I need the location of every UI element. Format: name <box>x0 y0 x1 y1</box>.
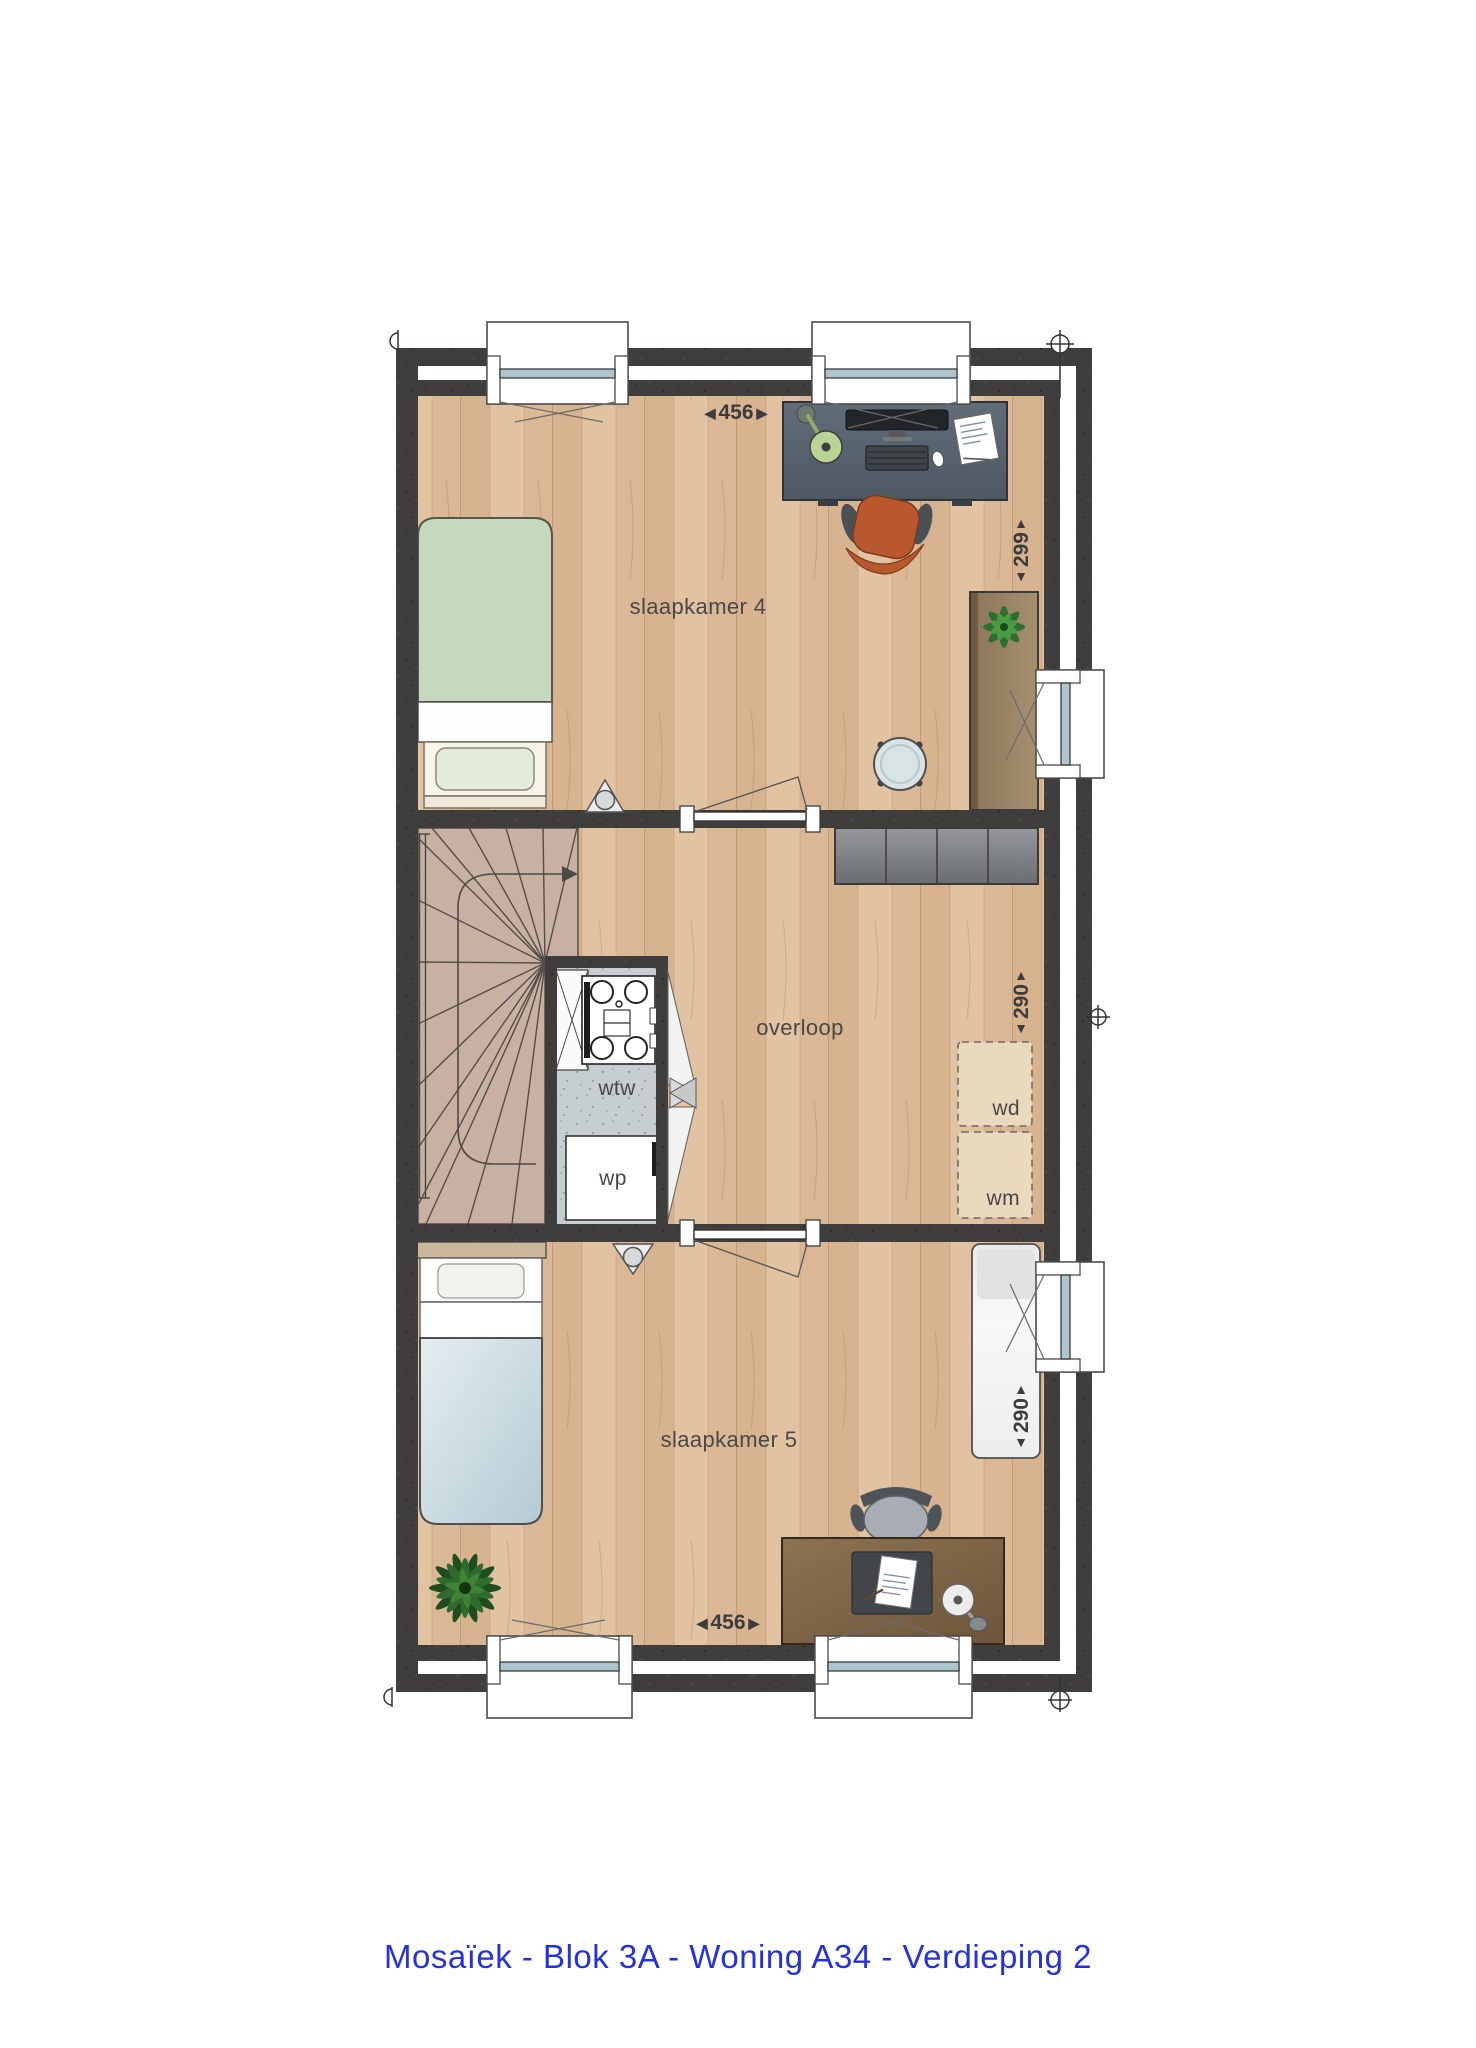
dimension-value: 456 <box>718 402 753 423</box>
dimension-value: 456 <box>710 1612 745 1633</box>
room-label-bedroom5: slaapkamer 5 <box>609 1429 849 1451</box>
papers <box>953 413 998 465</box>
floorplan-page: slaapkamer 4 overloop slaapkamer 5 wtw w… <box>0 0 1476 2048</box>
wardrobe-cabinet <box>835 828 1038 884</box>
dim-arrow-up-icon: ▲ <box>1014 968 1028 982</box>
label-dryer: wd <box>958 1098 1020 1119</box>
dim-arrow-down-icon: ▼ <box>1014 569 1028 583</box>
dim-arrow-down-icon: ▼ <box>1014 1435 1028 1449</box>
dim-arrow-left-icon: ◀ <box>697 1616 708 1630</box>
dim-arrow-right-icon: ▶ <box>749 1616 760 1630</box>
dimension-landing-depth: ▲ 290 ▼ <box>1000 968 1042 1035</box>
label-heat-recovery-unit: wtw <box>577 1078 657 1099</box>
keyboard <box>866 446 928 470</box>
dimension-value: 290 <box>1011 1398 1032 1433</box>
dimension-bedroom4-depth: ▲ 299 ▼ <box>1000 516 1042 583</box>
wtw-unit <box>556 970 657 1070</box>
dim-arrow-down-icon: ▼ <box>1014 1021 1028 1035</box>
dimension-value: 290 <box>1011 984 1032 1019</box>
label-heat-pump: wp <box>573 1168 653 1189</box>
plant-sideboard <box>983 606 1025 648</box>
dim-arrow-left-icon: ◀ <box>705 406 716 420</box>
stool <box>874 738 926 790</box>
room-label-bedroom4: slaapkamer 4 <box>578 596 818 618</box>
closet-wall-top <box>545 956 668 968</box>
wall-left <box>396 348 418 1692</box>
paper-bedroom5 <box>875 1556 917 1609</box>
desk-bedroom5 <box>782 1538 1004 1644</box>
wall-right-outer <box>1076 348 1092 1692</box>
bed-bedroom4 <box>418 518 552 808</box>
dim-arrow-up-icon: ▲ <box>1014 1382 1028 1396</box>
closet-wall-right <box>656 956 668 1224</box>
dimension-bedroom4-width: ◀ 456 ▶ <box>666 402 806 423</box>
dimension-value: 299 <box>1011 532 1032 567</box>
dim-arrow-right-icon: ▶ <box>757 406 768 420</box>
dim-arrow-up-icon: ▲ <box>1014 516 1028 530</box>
marker-top-left-icon <box>390 330 398 352</box>
marker-bottom-left-icon <box>384 1687 392 1707</box>
dimension-bedroom5-width: ◀ 456 ▶ <box>658 1612 798 1633</box>
plan-caption: Mosaïek - Blok 3A - Woning A34 - Verdiep… <box>0 1938 1476 1976</box>
label-washer: wm <box>958 1188 1020 1209</box>
dimension-bedroom5-depth: ▲ 290 ▼ <box>1000 1382 1042 1449</box>
room-label-landing: overloop <box>700 1017 900 1039</box>
closet-wall-left <box>545 956 557 1224</box>
bed-bedroom5 <box>414 1242 546 1524</box>
wall-right-inner <box>1044 380 1060 1645</box>
